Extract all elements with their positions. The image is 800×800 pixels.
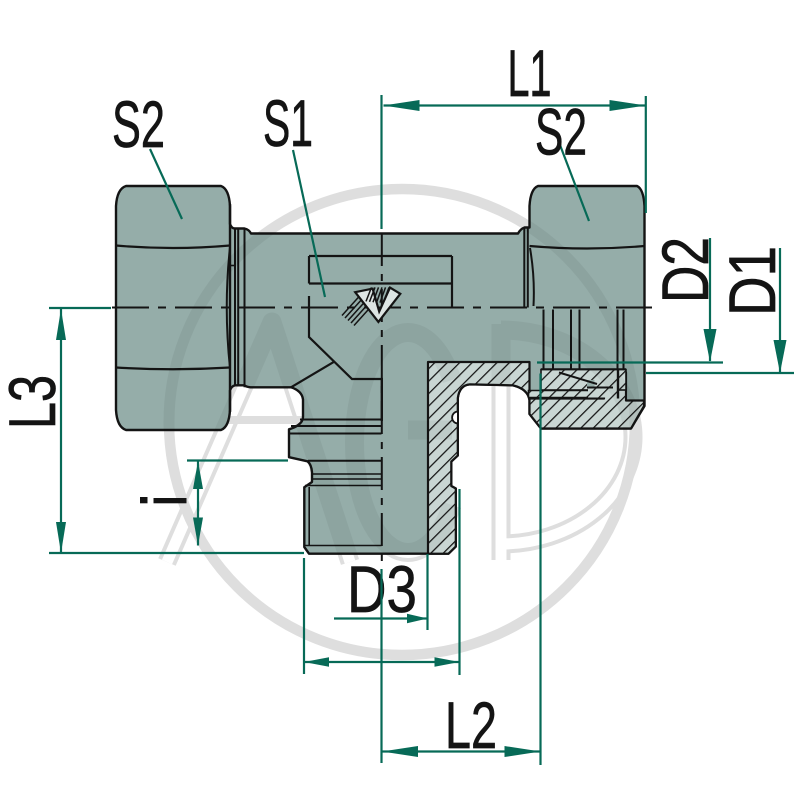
svg-text:S2: S2 [112,87,165,161]
svg-text:L3: L3 [0,375,69,429]
svg-text:L2: L2 [445,688,497,762]
svg-text:D1: D1 [715,246,789,316]
svg-text:S1: S1 [263,86,313,160]
svg-text:D2: D2 [648,237,722,303]
svg-text:S2: S2 [535,95,587,169]
